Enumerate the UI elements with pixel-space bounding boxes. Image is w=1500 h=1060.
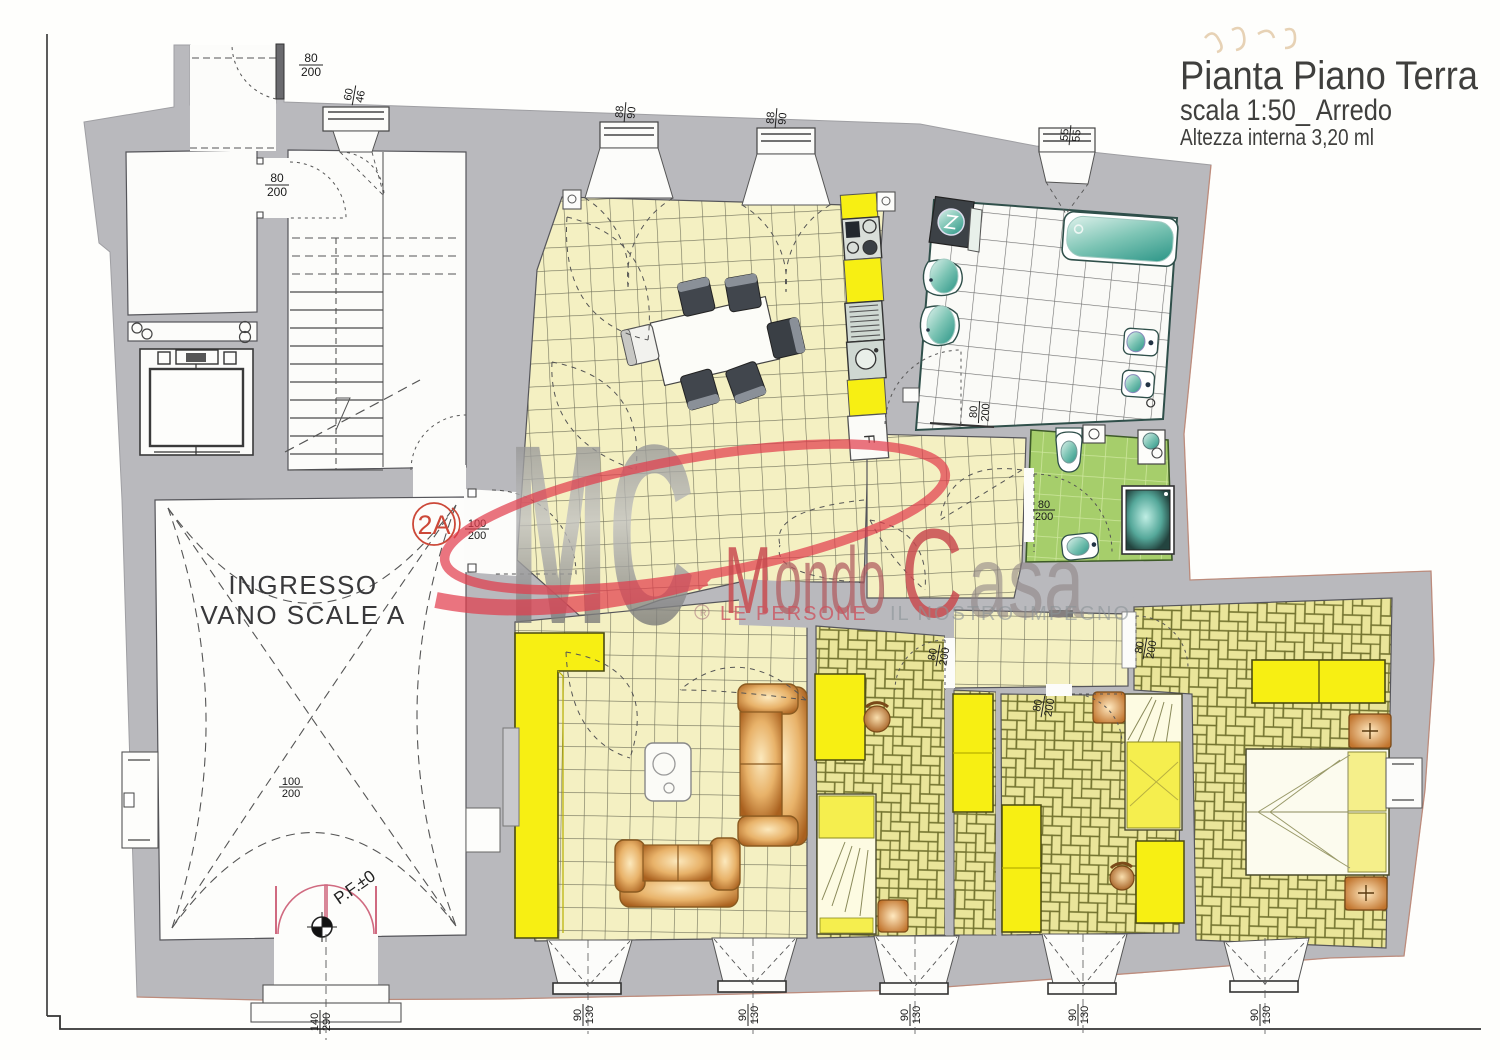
svg-text:IL NOSTRO IMPEGNO: IL NOSTRO IMPEGNO [890,603,1131,625]
svg-text:140: 140 [309,1013,321,1031]
svg-text:90: 90 [899,1009,911,1021]
svg-text:scala 1:50_ Arredo: scala 1:50_ Arredo [1180,94,1392,127]
svg-text:55: 55 [1070,129,1083,142]
svg-text:LE PERSONE: LE PERSONE [720,603,868,625]
svg-text:90: 90 [625,106,638,119]
svg-text:100: 100 [282,776,300,788]
svg-text:Pianta Piano Terra: Pianta Piano Terra [1180,54,1479,98]
svg-text:80: 80 [304,51,318,65]
svg-text:200: 200 [267,185,287,199]
svg-text:80: 80 [270,171,284,185]
svg-text:90: 90 [1249,1009,1261,1021]
svg-text:200: 200 [1035,511,1053,523]
svg-text:MC: MC [508,393,695,678]
svg-text:130: 130 [911,1006,923,1024]
svg-text:130: 130 [584,1006,596,1024]
svg-text:130: 130 [749,1006,761,1024]
svg-text:90: 90 [572,1009,584,1021]
svg-text:130: 130 [1261,1006,1273,1024]
svg-text:90: 90 [737,1009,749,1021]
svg-text:90: 90 [776,112,789,125]
svg-text:2A: 2A [417,510,450,540]
svg-text:200: 200 [301,65,321,79]
svg-text:200: 200 [980,403,993,422]
svg-text:INGRESSO: INGRESSO [228,570,377,600]
svg-text:90: 90 [1067,1009,1079,1021]
svg-text:290: 290 [321,1013,333,1031]
svg-text:130: 130 [1079,1006,1091,1024]
svg-text:80: 80 [1038,499,1050,511]
svg-text:R: R [700,608,707,618]
svg-text:VANO SCALE A: VANO SCALE A [200,600,405,630]
svg-text:Altezza interna 3,20 ml: Altezza interna 3,20 ml [1180,124,1374,150]
svg-text:200: 200 [282,788,300,800]
svg-text:46: 46 [354,89,368,103]
